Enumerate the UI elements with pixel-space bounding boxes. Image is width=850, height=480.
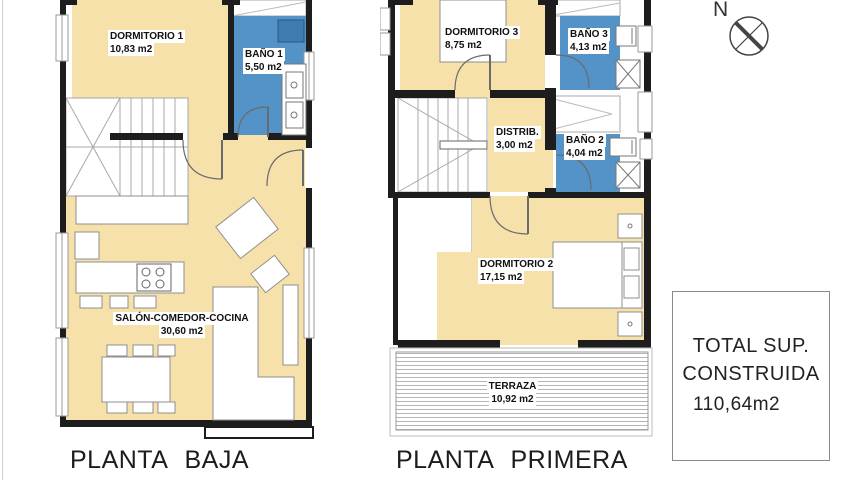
floorplan-sheet: DORMITORIO 1 10,83 m2 BAÑO 1 5,50 m2 SAL… (0, 0, 850, 480)
room-name: DORMITORIO 1 (108, 30, 185, 43)
planta-baja-title: PLANTA BAJA (70, 446, 249, 475)
room-name: DORMITORIO 2 (478, 258, 555, 271)
room-name: BAÑO 3 (568, 28, 610, 41)
room-name: BAÑO 1 (243, 48, 285, 61)
nightstand (618, 312, 642, 336)
chair (158, 402, 175, 413)
room-name: DORMITORIO 3 (443, 26, 520, 39)
room-area: 8,75 m2 (443, 39, 484, 52)
room-area: 10,83 m2 (108, 43, 154, 56)
north-label: N (713, 0, 728, 21)
north-compass: N (705, 0, 795, 70)
nightstand (618, 214, 642, 238)
room-label-dormitorio-3: DORMITORIO 3 8,75 m2 (443, 26, 520, 52)
dining-table (102, 357, 170, 402)
room-area: 4,04 m2 (564, 147, 605, 160)
entry-step (205, 427, 313, 438)
room-area: 17,15 m2 (478, 271, 524, 284)
room-label-dormitorio-1: DORMITORIO 1 10,83 m2 (108, 30, 185, 56)
dining-set (102, 345, 175, 413)
room-name: DISTRIB. (494, 126, 541, 139)
sink-basin (286, 102, 303, 128)
room-label-terraza: TERRAZA 10,92 m2 (430, 380, 595, 406)
staircase-first (398, 98, 487, 192)
pillow (624, 248, 639, 270)
room-name: SALÓN-COMEDOR-COCINA (113, 312, 250, 325)
chair (158, 345, 175, 356)
tv-unit (283, 285, 298, 365)
room-area: 3,00 m2 (494, 139, 535, 152)
room-label-salon: SALÓN-COMEDOR-COCINA 30,60 m2 (98, 312, 266, 338)
room-label-distribuidor: DISTRIB. 3,00 m2 (494, 126, 541, 152)
total-area-box: TOTAL SUP. CONSTRUIDA 110,64m2 (672, 291, 830, 461)
room-area: 30,60 m2 (159, 325, 205, 338)
shower-tray (278, 20, 304, 42)
chair (133, 402, 153, 413)
room-name: TERRAZA (487, 380, 539, 393)
stool (80, 296, 102, 308)
room-label-bano-3: BAÑO 3 4,13 m2 (568, 28, 610, 54)
wardrobe (550, 96, 620, 132)
kitchen-counter-top (76, 196, 188, 224)
staircase-ground (66, 98, 188, 196)
sink-basin (286, 72, 303, 98)
stool (110, 296, 128, 308)
room-area: 5,50 m2 (243, 61, 284, 74)
planta-primera-title: PLANTA PRIMERA (396, 446, 628, 475)
room-label-bano-2: BAÑO 2 4,04 m2 (564, 134, 606, 160)
sheet-edge-line (2, 0, 3, 480)
chair (133, 345, 153, 356)
room-area: 4,13 m2 (568, 41, 609, 54)
fridge (75, 232, 99, 259)
total-area-value: 110,64m2 (673, 394, 829, 416)
planta-primera-drawing (380, 0, 665, 445)
total-area-title-line1: TOTAL SUP. (673, 332, 829, 360)
pillow (624, 276, 639, 298)
chair (107, 402, 127, 413)
room-name: BAÑO 2 (564, 134, 606, 147)
stool (134, 296, 156, 308)
room-label-bano-1: BAÑO 1 5,50 m2 (243, 48, 285, 74)
stove (137, 264, 171, 291)
room-area: 10,92 m2 (489, 393, 535, 406)
total-area-title-line2: CONSTRUIDA (673, 360, 829, 388)
room-label-dormitorio-2: DORMITORIO 2 17,15 m2 (478, 258, 555, 284)
chair (107, 345, 127, 356)
toilet (616, 26, 636, 46)
bano1-fixtures (278, 20, 306, 135)
stair-handrail (440, 141, 487, 149)
